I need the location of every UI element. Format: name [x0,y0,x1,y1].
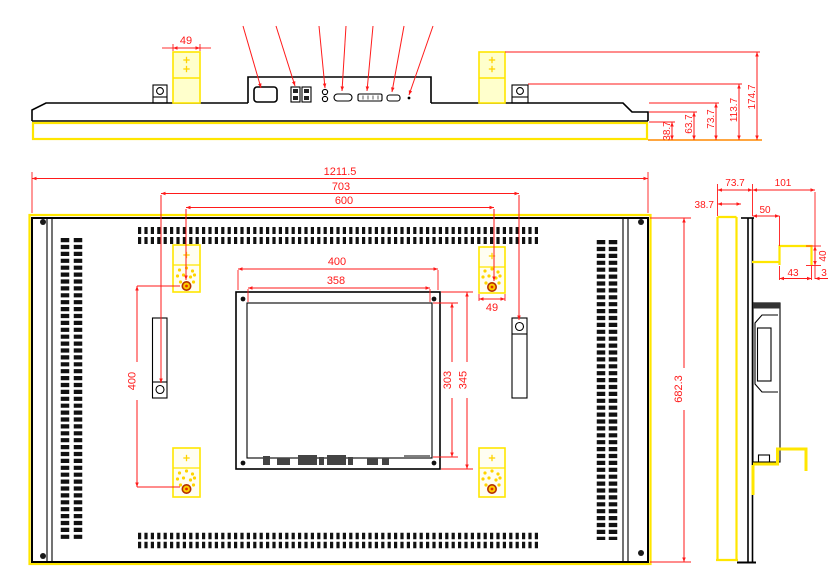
dim-label-h5: 174.7 [747,84,758,109]
vga-port-icon [334,94,352,101]
plate-screw [432,461,437,466]
vent-slots-top [138,231,540,241]
rear-view: 1211.5 703 600 400 358 [30,166,692,564]
dim-label-opening-width: 358 [327,275,345,287]
corner-screw [638,219,644,225]
top-view-body-outline [32,103,248,121]
handle-bracket [153,85,167,103]
top-view: 49 38.7 63.7 73.7 113.7 174.7 [32,26,762,141]
dim-opening-width: 358 [248,275,430,302]
top-view-height-dims: 38.7 63.7 73.7 113.7 174.7 [505,52,762,141]
port-row [254,87,410,102]
front-bezel-highlight [33,123,647,139]
dim-overall-height: 682.3 [650,218,691,562]
side-bezel-highlight [716,217,738,560]
side-view-dims: 73.7 101 38.7 50 40 43 3 [695,178,829,280]
dim-label-bracket-height: 40 [818,250,829,262]
dim-opening-height: 303 [433,303,458,457]
mounting-pad [479,52,505,103]
top-view-body-outline-right [431,103,648,121]
mounting-pad [173,52,200,103]
dim-pad-width: 49 [479,294,505,314]
display-opening [247,303,432,458]
dim-label-bezel-depth: 38.7 [695,200,715,211]
mechanical-drawing: 49 38.7 63.7 73.7 113.7 174.7 [0,0,835,572]
dim-label-overall-height: 682.3 [673,375,685,403]
handle-bracket [512,318,527,398]
connector-panel [248,77,431,103]
plate-connector-cutouts [263,455,430,465]
plate-screw [241,297,246,302]
dim-label-h4: 113.7 [729,97,740,122]
dim-label-opening-height: 303 [442,371,454,389]
dim-label-top-pad-width: 49 [180,35,192,47]
power-button-icon [408,97,411,100]
vent-slots-bottom [138,536,540,545]
dim-label-h2: 63.7 [684,114,695,134]
dim-label-box-depth: 50 [759,205,771,216]
port-leader-lines [243,26,433,95]
mounting-pad [479,448,505,497]
dim-label-pad-width: 49 [486,302,498,314]
rear-electronics-box [753,303,780,463]
corner-screw [638,550,644,556]
handle-bracket [153,318,168,398]
display-module-plate [236,292,440,469]
dim-mount-height: 400 [127,286,181,487]
dim-label-bracket-gap: 3 [821,268,827,279]
vent-slots-left [65,238,78,540]
dim-label-front-depth: 73.7 [725,178,745,189]
dim-label-mount-width: 600 [335,195,353,207]
corner-screw [40,219,46,225]
dim-label-mount-height: 400 [127,372,139,390]
audio-jacks-icon [322,89,327,101]
dim-label-handle-spacing: 703 [332,181,350,193]
plate-screw [241,461,246,466]
hdmi-port-icon [387,95,400,101]
corner-screw [40,553,46,559]
dim-label-overall-width: 1211.5 [324,166,357,178]
dim-label-h3: 73.7 [706,109,717,129]
vent-slots-right [601,240,613,540]
dim-label-plate-width: 400 [328,256,346,268]
power-inlet-icon [254,87,277,102]
mounting-pad [173,448,200,497]
mounting-pad [479,247,505,293]
dim-label-plate-height: 345 [458,371,470,389]
top-bracket-highlight [752,246,812,265]
dim-label-bracket-width: 43 [787,268,799,279]
dvi-port-icon [358,94,382,101]
drawing-canvas: 49 38.7 63.7 73.7 113.7 174.7 [0,0,835,572]
side-view: 73.7 101 38.7 50 40 43 3 [695,178,829,563]
plate-screw [432,297,437,302]
dim-top-pad-width: 49 [162,35,211,51]
rear-body-outline [32,218,648,562]
handle-bracket [512,85,528,103]
usb-ports-icon [291,87,311,102]
dim-label-rear-depth: 101 [775,178,792,189]
dim-label-h1: 38.7 [662,121,673,141]
